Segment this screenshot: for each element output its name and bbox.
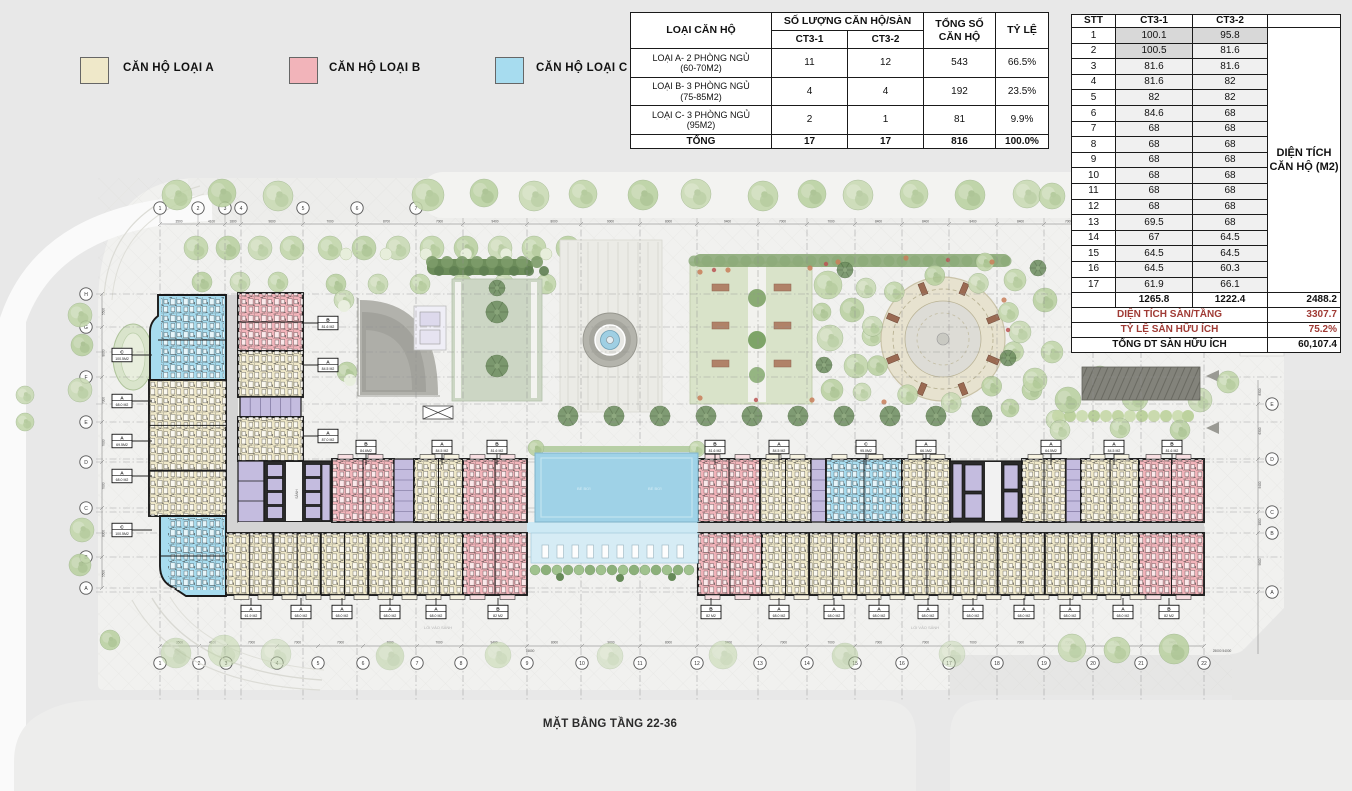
svg-text:68.0 M2: 68.0 M2 [384, 614, 397, 618]
svg-text:68.0 M2: 68.0 M2 [430, 614, 443, 618]
svg-text:8400: 8400 [1017, 220, 1024, 224]
svg-text:LỐI VÀO SẢNH: LỐI VÀO SẢNH [911, 625, 939, 630]
svg-text:B: B [495, 442, 499, 448]
svg-text:82 M2: 82 M2 [706, 614, 716, 618]
svg-text:A: A [326, 431, 330, 437]
svg-text:68.0 M2: 68.0 M2 [828, 614, 841, 618]
svg-text:B: B [1170, 442, 1174, 448]
svg-text:22: 22 [1201, 661, 1207, 667]
svg-text:5: 5 [302, 206, 305, 212]
svg-text:A: A [777, 442, 781, 448]
svg-text:61.9 M2: 61.9 M2 [245, 614, 258, 618]
svg-text:9000: 9000 [607, 220, 614, 224]
svg-text:A: A [926, 607, 930, 613]
svg-text:68.0 M2: 68.0 M2 [295, 614, 308, 618]
svg-text:2: 2 [197, 206, 200, 212]
svg-text:7000: 7000 [248, 640, 255, 644]
svg-text:7000: 7000 [102, 439, 106, 446]
svg-text:A: A [388, 607, 392, 613]
svg-text:68.0 M2: 68.0 M2 [1018, 614, 1031, 618]
svg-text:7000: 7000 [436, 220, 443, 224]
svg-text:8000: 8000 [102, 530, 106, 537]
svg-text:18: 18 [994, 661, 1000, 667]
svg-text:6: 6 [362, 661, 365, 667]
svg-text:6300: 6300 [1258, 427, 1262, 434]
svg-text:C: C [84, 506, 88, 512]
svg-text:21: 21 [1138, 661, 1144, 667]
svg-text:B: B [709, 607, 713, 613]
svg-text:9: 9 [526, 661, 529, 667]
svg-text:8000: 8000 [102, 349, 106, 356]
svg-text:A: A [877, 607, 881, 613]
svg-text:H: H [84, 292, 88, 298]
svg-text:A: A [326, 360, 330, 366]
svg-text:A: A [971, 607, 975, 613]
svg-text:5500: 5500 [102, 308, 106, 315]
svg-text:1: 1 [159, 206, 162, 212]
svg-text:A: A [440, 442, 444, 448]
svg-text:BỂ BƠI: BỂ BƠI [577, 486, 591, 491]
svg-text:6: 6 [356, 206, 359, 212]
svg-text:7000: 7000 [326, 220, 333, 224]
svg-text:87.0 M2: 87.0 M2 [322, 438, 335, 442]
svg-text:19: 19 [1041, 661, 1047, 667]
svg-text:9600: 9600 [268, 220, 275, 224]
svg-text:68.0 M2: 68.0 M2 [773, 614, 786, 618]
svg-text:D: D [84, 460, 88, 466]
svg-text:68.0 M2: 68.0 M2 [922, 614, 935, 618]
svg-text:A: A [1112, 442, 1116, 448]
svg-text:16: 16 [899, 661, 905, 667]
svg-text:7000: 7000 [294, 640, 301, 644]
svg-text:84.6M2: 84.6M2 [360, 449, 372, 453]
svg-text:5500: 5500 [102, 570, 106, 577]
svg-text:B: B [326, 318, 330, 324]
svg-text:LỐI VÀO SẢNH: LỐI VÀO SẢNH [424, 625, 452, 630]
svg-text:7000: 7000 [827, 220, 834, 224]
svg-text:84.5 M2: 84.5 M2 [1108, 449, 1121, 453]
svg-text:A: A [120, 396, 124, 402]
svg-text:C: C [1270, 510, 1274, 516]
svg-text:81.6 M2: 81.6 M2 [709, 449, 722, 453]
svg-text:1800: 1800 [229, 220, 236, 224]
svg-text:84.5 M2: 84.5 M2 [436, 449, 449, 453]
svg-text:B: B [364, 442, 368, 448]
svg-text:81.6 M2: 81.6 M2 [322, 325, 335, 329]
svg-text:A: A [924, 442, 928, 448]
svg-text:SẢNH: SẢNH [294, 489, 299, 499]
svg-text:68.0 M2: 68.0 M2 [336, 614, 349, 618]
svg-text:A: A [434, 607, 438, 613]
svg-text:68.0 M2: 68.0 M2 [1064, 614, 1077, 618]
svg-text:8000: 8000 [551, 640, 558, 644]
svg-text:7000: 7000 [337, 640, 344, 644]
svg-text:8: 8 [460, 661, 463, 667]
svg-text:A: A [1022, 607, 1026, 613]
svg-text:68.0 M2: 68.0 M2 [116, 403, 129, 407]
svg-text:9600: 9600 [1258, 558, 1262, 565]
svg-text:4: 4 [240, 206, 243, 212]
svg-text:D: D [1270, 457, 1274, 463]
svg-text:12: 12 [694, 661, 700, 667]
svg-text:68.0 M2: 68.0 M2 [967, 614, 980, 618]
svg-text:20: 20 [1090, 661, 1096, 667]
svg-text:66.1M2: 66.1M2 [920, 449, 932, 453]
svg-text:74600: 74600 [526, 649, 535, 653]
svg-text:7000: 7000 [102, 482, 106, 489]
svg-text:C: C [120, 350, 124, 356]
svg-text:7000: 7000 [827, 640, 834, 644]
svg-text:B: B [1167, 607, 1171, 613]
svg-text:68.0 M2: 68.0 M2 [1117, 614, 1130, 618]
svg-text:B: B [713, 442, 717, 448]
svg-text:81.6 M2: 81.6 M2 [1166, 449, 1179, 453]
svg-text:4100: 4100 [208, 220, 215, 224]
svg-text:A: A [249, 607, 253, 613]
svg-text:8000: 8000 [550, 220, 557, 224]
svg-text:7000: 7000 [1017, 640, 1024, 644]
svg-text:BỂ BƠI: BỂ BƠI [648, 486, 662, 491]
svg-text:A: A [120, 471, 124, 477]
svg-text:3500: 3500 [175, 220, 182, 224]
svg-text:11: 11 [637, 661, 642, 667]
svg-text:9400: 9400 [491, 220, 498, 224]
svg-text:7000: 7000 [435, 640, 442, 644]
svg-text:7000: 7000 [780, 640, 787, 644]
svg-text:69.5M2: 69.5M2 [116, 443, 128, 447]
svg-text:68.0 M2: 68.0 M2 [116, 478, 129, 482]
svg-text:9400: 9400 [1258, 481, 1262, 488]
svg-text:81.6 M2: 81.6 M2 [491, 449, 504, 453]
svg-text:1: 1 [159, 661, 162, 667]
svg-text:95.0M2: 95.0M2 [860, 449, 872, 453]
svg-text:7000: 7000 [779, 220, 786, 224]
svg-text:C: C [864, 442, 868, 448]
svg-text:A: A [1121, 607, 1125, 613]
svg-text:A: A [299, 607, 303, 613]
svg-text:A: A [777, 607, 781, 613]
svg-text:8000: 8000 [665, 640, 672, 644]
svg-text:A: A [832, 607, 836, 613]
svg-text:7000: 7000 [969, 640, 976, 644]
svg-text:5: 5 [317, 661, 320, 667]
svg-text:7000: 7000 [102, 397, 106, 404]
svg-text:A: A [1068, 607, 1072, 613]
svg-text:9400: 9400 [724, 220, 731, 224]
svg-text:B: B [496, 607, 500, 613]
svg-text:7000: 7000 [875, 640, 882, 644]
svg-text:68.0 M2: 68.0 M2 [873, 614, 886, 618]
svg-text:25000 54000: 25000 54000 [1213, 649, 1232, 653]
svg-text:A: A [120, 436, 124, 442]
svg-text:100.5M2: 100.5M2 [115, 357, 129, 361]
svg-text:7: 7 [416, 661, 419, 667]
svg-text:14: 14 [804, 661, 810, 667]
svg-text:84.5 M2: 84.5 M2 [322, 367, 335, 371]
svg-text:7000: 7000 [922, 640, 929, 644]
svg-text:1800: 1800 [1258, 518, 1262, 525]
svg-text:82 M2: 82 M2 [1164, 614, 1174, 618]
svg-text:13: 13 [757, 661, 763, 667]
svg-text:8300: 8300 [1258, 388, 1262, 395]
svg-text:64.5M2: 64.5M2 [1045, 449, 1057, 453]
svg-text:84.5 M2: 84.5 M2 [773, 449, 786, 453]
svg-text:8000: 8000 [665, 220, 672, 224]
svg-text:C: C [120, 525, 124, 531]
svg-text:8700: 8700 [383, 220, 390, 224]
svg-text:100.5M2: 100.5M2 [115, 532, 129, 536]
svg-text:8400: 8400 [875, 220, 882, 224]
svg-text:82 M2: 82 M2 [493, 614, 503, 618]
svg-text:A: A [1049, 442, 1053, 448]
svg-text:10: 10 [579, 661, 585, 667]
svg-text:A: A [340, 607, 344, 613]
svg-text:8400: 8400 [969, 220, 976, 224]
svg-text:8400: 8400 [922, 220, 929, 224]
